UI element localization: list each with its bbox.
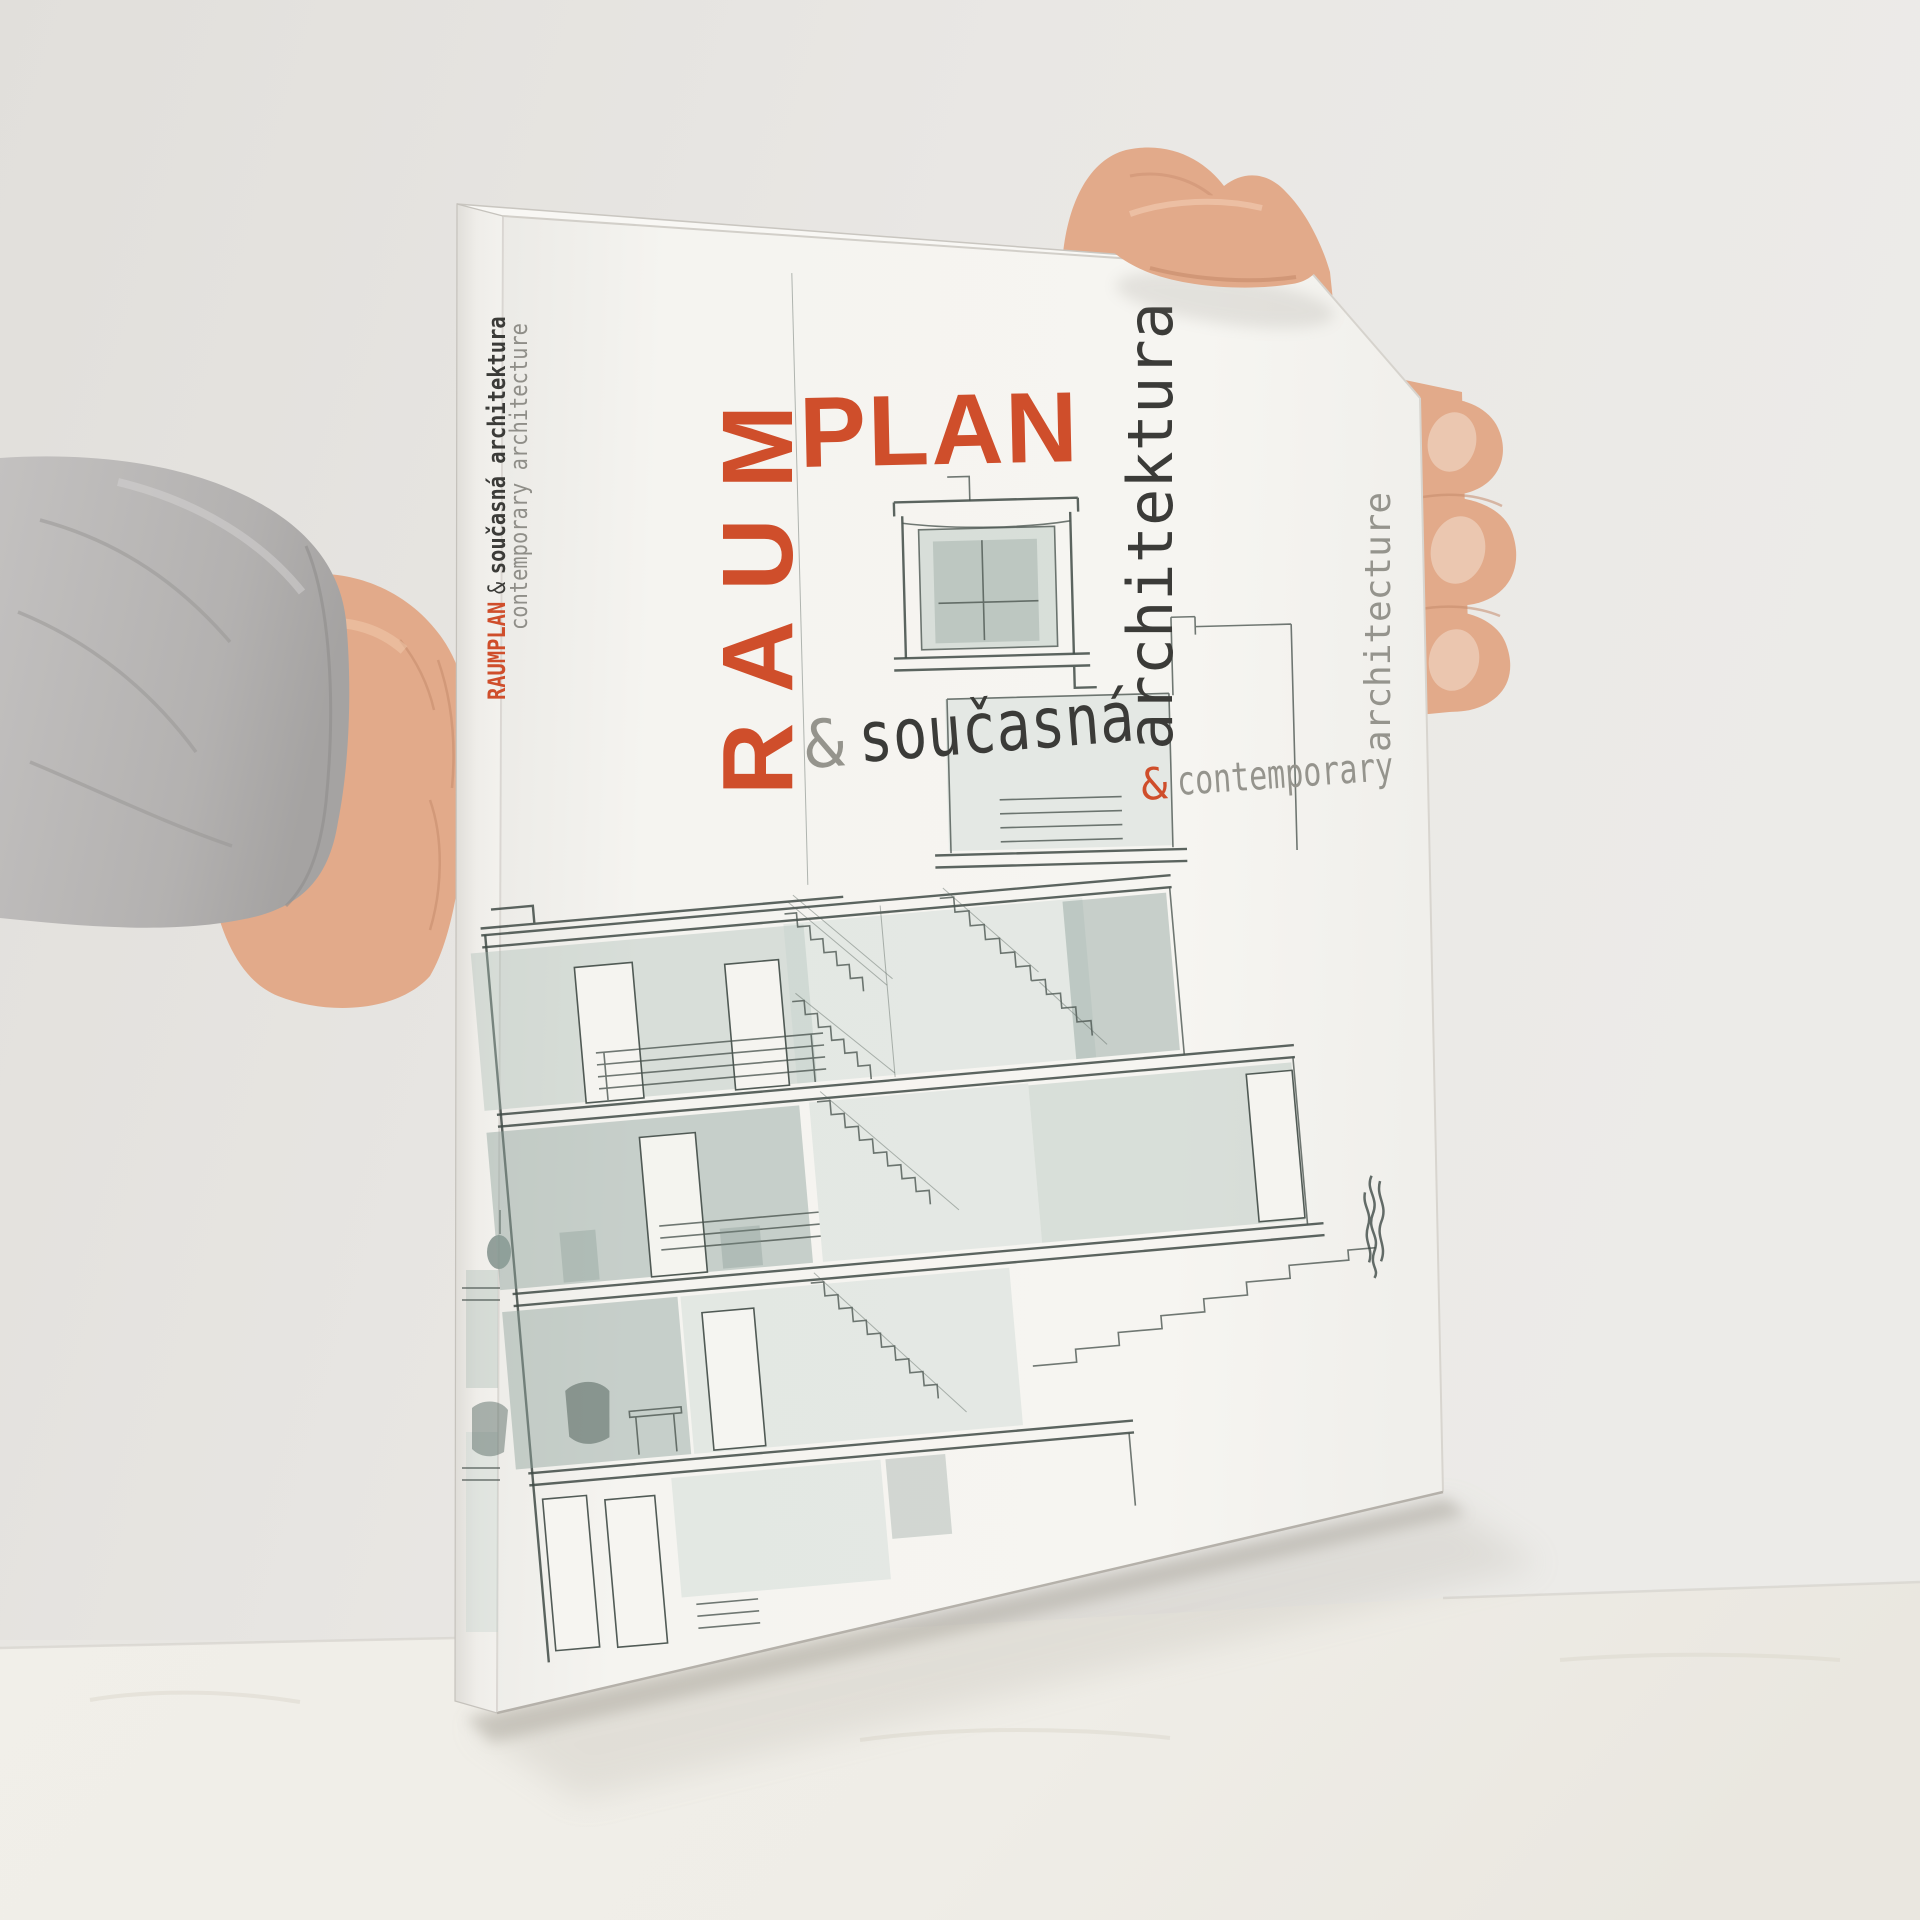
f2-furniture-2 [720, 1225, 763, 1268]
f2-wash-stair [809, 1083, 1042, 1262]
photo-of-book-held-by-hand: RAUMPLAN&současná architektura contempor… [0, 0, 1920, 1920]
f4-cabinet [885, 1454, 952, 1539]
spine-wash-2 [466, 1432, 498, 1632]
f3-chair-sketch [565, 1380, 614, 1446]
f2-furniture-1 [559, 1230, 599, 1283]
tower-room-wash-inner [933, 539, 1040, 644]
book: RAUMPLAN&současná architektura contempor… [455, 204, 1443, 1713]
spine-subtitle-line: contemporary architecture [505, 323, 533, 630]
f2-door [639, 1133, 707, 1277]
f3-door [702, 1308, 766, 1450]
cover-amp-cz: & [802, 704, 847, 784]
f1-door-1 [574, 962, 644, 1103]
f1-door-2 [725, 960, 790, 1090]
cover-vertical-architektura: architektura [1114, 302, 1187, 750]
f1-wash-right [1062, 893, 1179, 1059]
cover-title-raum: RAUM [702, 375, 814, 795]
spine-subtitle-en: contemporary architecture [505, 323, 533, 630]
f4-wash [671, 1460, 891, 1598]
spine-chair-sketch [472, 1401, 508, 1456]
cover-vertical-architecture: architecture [1358, 492, 1399, 752]
cover-title-plan: PLAN [798, 371, 1081, 489]
cover-amp-en: & [1139, 758, 1169, 811]
scene: RAUMPLAN&současná architektura contempor… [0, 0, 1920, 1920]
